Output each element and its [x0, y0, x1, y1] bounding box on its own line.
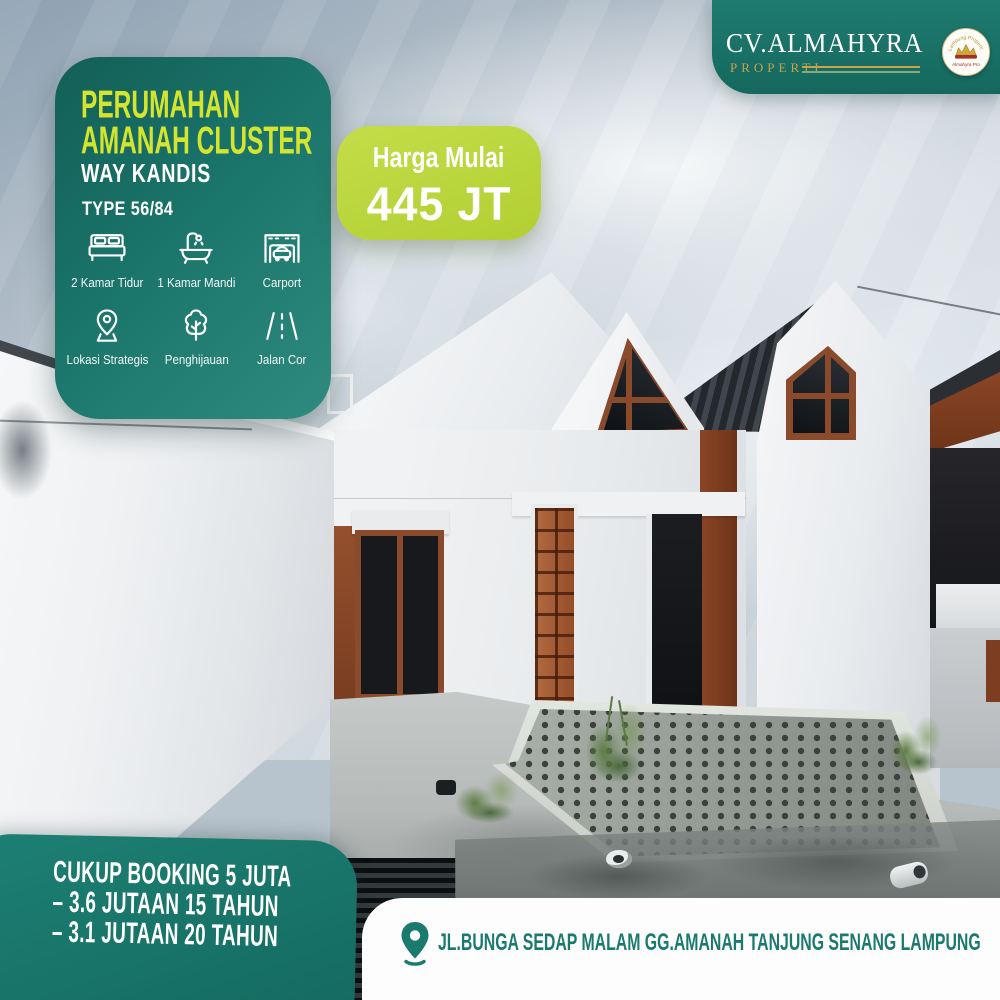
tree-icon — [173, 304, 219, 348]
window-muntin — [786, 393, 856, 399]
feature-road: Jalan Cor — [241, 304, 323, 367]
front-window — [355, 530, 444, 700]
carport-post — [986, 640, 1000, 702]
listing-type: TYPE 56/84 — [82, 199, 173, 221]
small-white-frame — [327, 374, 353, 414]
gold-rule — [802, 71, 920, 73]
brand-header-band: CV.ALMAHYRA PROPERTI Lampung Properti Al… — [712, 0, 1000, 94]
entry-doorway — [646, 514, 702, 736]
feature-bathrooms: 1 Kamar Mandi — [154, 227, 239, 290]
feature-label: 1 Kamar Mandi — [157, 276, 235, 290]
feature-bedrooms: 2 Kamar Tidur — [63, 227, 152, 290]
bathtub-icon — [173, 227, 219, 271]
feature-label: Lokasi Strategis — [67, 353, 149, 367]
booking-line: – 3.1 JUTAAN 20 TAHUN — [52, 915, 279, 954]
bed-icon — [84, 227, 130, 271]
price-value: 445 JT — [367, 176, 512, 231]
window-muntin — [626, 338, 632, 440]
listing-location: WAY KANDIS — [81, 158, 211, 189]
map-pin-icon — [84, 304, 130, 348]
gold-rule — [802, 66, 920, 68]
address-text: JL.BUNGA SEDAP MALAM GG.AMANAH TANJUNG S… — [438, 928, 981, 957]
feature-label: Penghijauan — [164, 353, 228, 367]
listing-card: PERUMAHAN AMANAH CLUSTER WAY KANDIS TYPE… — [55, 57, 331, 419]
window-muntin — [825, 346, 831, 440]
address-bar: JL.BUNGA SEDAP MALAM GG.AMANAH TANJUNG S… — [362, 898, 1000, 1000]
price-badge: Harga Mulai 445 JT — [337, 126, 541, 240]
location-pin-icon — [398, 920, 432, 970]
feature-grid: 2 Kamar Tidur 1 Kamar Mandi — [63, 227, 323, 367]
brand-division: PROPERTI — [730, 60, 823, 76]
pvc-pipe — [606, 850, 632, 868]
price-label: Harga Mulai — [373, 142, 505, 175]
feature-label: 2 Kamar Tidur — [71, 276, 143, 290]
road-icon — [259, 304, 305, 348]
weed-tuft — [884, 708, 946, 780]
wall-shadow — [0, 400, 52, 500]
brand-name: CV.ALMAHYRA — [726, 28, 927, 59]
booking-badge: CUKUP BOOKING 5 JUTA – 3.6 JUTAAN 15 TAH… — [0, 833, 358, 1000]
crown-emblem-icon: Lampung Properti Almahyra Pro — [943, 29, 989, 75]
logo-bottom-text: Almahyra Pro — [952, 62, 980, 67]
feature-location: Lokasi Strategis — [63, 304, 152, 367]
weed-stem — [618, 700, 628, 746]
feature-label: Carport — [263, 276, 301, 290]
brand-logo-badge: Lampung Properti Almahyra Pro — [942, 28, 990, 76]
carport-white-beam — [936, 584, 1000, 628]
weed-tuft — [578, 694, 652, 790]
feature-greenery: Penghijauan — [154, 304, 239, 367]
feature-label: Jalan Cor — [257, 353, 306, 367]
weed-stem — [605, 696, 613, 742]
weed-tuft — [448, 766, 524, 828]
ground-fixture — [436, 780, 456, 795]
terracotta-pilaster — [700, 430, 737, 740]
feature-carport: Carport — [241, 227, 323, 290]
flyer-canvas: CV.ALMAHYRA PROPERTI Lampung Properti Al… — [0, 0, 1000, 1000]
window-mullion — [397, 536, 403, 694]
carport-icon — [259, 227, 305, 271]
